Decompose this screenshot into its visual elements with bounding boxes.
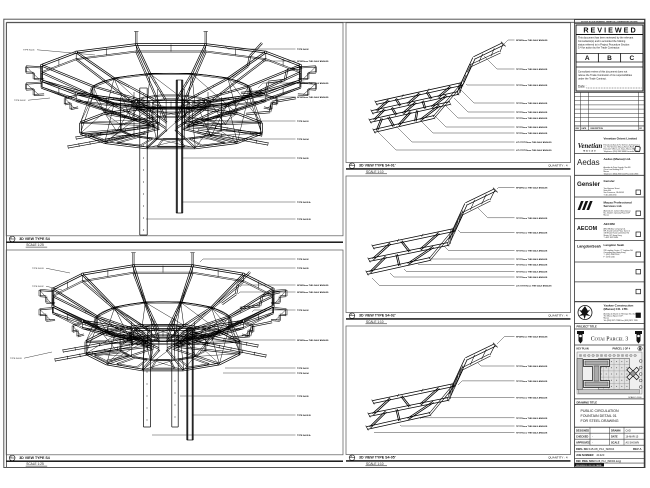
svg-text:SCALE 1:25: SCALE 1:25: [26, 243, 44, 247]
svg-text:FOR STEEL DRAWING: FOR STEEL DRAWING: [581, 419, 619, 423]
svg-text:TYPE S4-05 A: TYPE S4-05 A: [297, 201, 311, 204]
svg-text:MACAO: MACAO: [583, 150, 596, 153]
svg-text:75*75*6mm THK GALV ANGLES: 75*75*6mm THK GALV ANGLES: [516, 276, 548, 279]
svg-text:BY: BY: [640, 128, 643, 130]
svg-text:SP50F6mm THK GALV ANGLES: SP50F6mm THK GALV ANGLES: [297, 291, 329, 294]
svg-text:SP50F6mm THK GALV ANGLES: SP50F6mm THK GALV ANGLES: [516, 336, 548, 339]
svg-text:TYPE S4-04: TYPE S4-04: [297, 372, 309, 375]
svg-text:KEY PLAN: KEY PLAN: [577, 348, 589, 351]
svg-text:TYPE S4-04: TYPE S4-04: [297, 138, 309, 141]
svg-text:SP50F6mm THK GALV ANGLES: SP50F6mm THK GALV ANGLES: [297, 82, 329, 85]
svg-text:-: -: [592, 441, 593, 444]
svg-text:-: -: [592, 435, 593, 438]
svg-text:3D VIEW TYPE S4-02': 3D VIEW TYPE S4-02': [359, 314, 396, 318]
svg-text:Aedas: Aedas: [577, 158, 600, 167]
svg-text:Venetian Orient Limited: Venetian Orient Limited: [604, 137, 638, 141]
svg-text:AECOM: AECOM: [604, 222, 616, 226]
svg-text:TYPE S4-01: TYPE S4-01: [23, 50, 35, 52]
svg-text:REV A: REV A: [633, 447, 641, 451]
svg-text:SP50F6mm THK GALV ANGLES: SP50F6mm THK GALV ANGLES: [297, 60, 329, 63]
svg-text:75*75*6mm THK GALV ANGLES: 75*75*6mm THK GALV ANGLES: [516, 380, 548, 383]
svg-text:Venetian: Venetian: [578, 143, 603, 150]
svg-text:PROJECT TITLE: PROJECT TITLE: [577, 325, 597, 329]
svg-text:DRAWN: DRAWN: [611, 429, 621, 432]
svg-text:L75 75*75*6mm THK GALV ANGLES: L75 75*75*6mm THK GALV ANGLES: [516, 285, 552, 288]
svg-text:TYPE S4-05 A: TYPE S4-05 A: [297, 434, 311, 437]
svg-text:T: 415.433.3700: T: 415.433.3700: [604, 194, 617, 196]
svg-text:Gensler: Gensler: [604, 179, 616, 183]
svg-text:R E V I E W E D: R E V I E W E D: [583, 26, 635, 35]
svg-text:TYPE S4-03: TYPE S4-03: [10, 358, 22, 360]
svg-text:75*75*6mm THK GALV ANGLES: 75*75*6mm THK GALV ANGLES: [516, 132, 548, 135]
svg-text:SCALE: SCALE: [611, 441, 620, 444]
svg-text:Telephone: (853) 2833 1113 Fa: Telephone: (853) 2833 1113 Facsimile 283…: [604, 173, 639, 175]
svg-text:TYPE S4-02: TYPE S4-02: [297, 48, 309, 51]
svg-text:TYPE S4-05 B: TYPE S4-05 B: [297, 218, 311, 221]
svg-text:21320: 21320: [597, 453, 605, 457]
svg-text:75*75*6mm THK GALV ANGLES: 75*75*6mm THK GALV ANGLES: [516, 117, 548, 120]
svg-text:SP50F6mm THK GALV ANGLES: SP50F6mm THK GALV ANGLES: [297, 339, 329, 342]
svg-text:TYPE S4-02: TYPE S4-02: [297, 309, 309, 312]
svg-text:3D VIEW TYPE S4: 3D VIEW TYPE S4: [19, 237, 50, 241]
svg-text:COTAI PARCEL 3: COTAI PARCEL 3: [591, 337, 629, 343]
svg-text:AECOM: AECOM: [577, 226, 598, 232]
svg-text:75*75*6mm THK GALV ANGLES: 75*75*6mm THK GALV ANGLES: [516, 264, 548, 267]
svg-text:TYPE S4-03: TYPE S4-03: [297, 120, 309, 123]
svg-text:75*75*6mm THK GALV ANGLES: 75*75*6mm THK GALV ANGLES: [516, 271, 548, 274]
svg-text:TYPE S4-02: TYPE S4-02: [32, 286, 44, 288]
svg-text:SCALE 1:1000: SCALE 1:1000: [628, 396, 642, 399]
svg-text:SP50F6mm THK GALV ANGLES: SP50F6mm THK GALV ANGLES: [297, 284, 329, 287]
svg-text:TYPE S4-05 B: TYPE S4-05 B: [297, 414, 311, 417]
svg-text:Tel: (853) 2871 7288 Fax: (85: Tel: (853) 2871 7288 Fax: (853) 2871 728…: [604, 320, 638, 322]
svg-text:REV: REV: [576, 128, 580, 130]
svg-text:Gensler: Gensler: [577, 181, 601, 188]
svg-text:DATE: DATE: [582, 127, 588, 130]
svg-text:APPROVED: APPROVED: [576, 441, 590, 444]
svg-text:Services Ltd.: Services Ltd.: [604, 204, 623, 208]
svg-text:SP50F6mm THK GALV ANGLES: SP50F6mm THK GALV ANGLES: [297, 96, 329, 99]
svg-text:TYPE S4-03: TYPE S4-03: [32, 268, 44, 270]
svg-text:SCALE 1:10: SCALE 1:10: [366, 170, 384, 174]
svg-text:TYPE S4-05: TYPE S4-05: [297, 267, 309, 270]
svg-text:Macau: Macau: [604, 215, 609, 217]
svg-text:FOUNTAIN DETAIL 01: FOUNTAIN DETAIL 01: [581, 414, 617, 418]
svg-text:A: A: [585, 55, 590, 62]
svg-text:75*75*6mm THK GALV ANGLES: 75*75*6mm THK GALV ANGLES: [516, 126, 548, 129]
svg-text:F : 2576 0416: F : 2576 0416: [604, 256, 615, 258]
svg-text:(Macau) CO. LTD.: (Macau) CO. LTD.: [604, 307, 629, 311]
svg-text:5.4 for action by the Trade Co: 5.4 for action by the Trade Contractor.: [578, 47, 620, 50]
svg-text:75*75*6mm THK GALV ANGLES: 75*75*6mm THK GALV ANGLES: [516, 417, 548, 420]
svg-text:3D VIEW TYPE S4-01': 3D VIEW TYPE S4-01': [359, 164, 396, 168]
svg-text:75*75*6mm THK GALV ANGLES: 75*75*6mm THK GALV ANGLES: [516, 217, 548, 220]
svg-text:TYPE S4-03: TYPE S4-03: [297, 367, 309, 370]
svg-text:75*75*6mm THK GALV ANGLES: 75*75*6mm THK GALV ANGLES: [516, 250, 548, 253]
svg-text:TYPE S4-02: TYPE S4-02: [14, 100, 26, 102]
svg-text:REF. DWG. NO.: REF. DWG. NO.: [576, 460, 594, 463]
svg-text:T +852 3922 9000: T +852 3922 9000: [604, 237, 619, 239]
svg-text:DWG. NO.: DWG. NO.: [576, 447, 589, 451]
svg-text:TYPE S4-05: TYPE S4-05: [297, 157, 309, 160]
svg-text:LangdonSeah: LangdonSeah: [577, 245, 601, 249]
svg-text:TYPE S4-02: TYPE S4-02: [297, 258, 309, 261]
svg-text:Langdon Seah: Langdon Seah: [604, 243, 625, 247]
svg-text:PARCEL 1 OF 4: PARCEL 1 OF 4: [613, 348, 631, 351]
svg-text:75*75*6mm THK GALV ANGLES: 75*75*6mm THK GALV ANGLES: [516, 432, 548, 435]
svg-text:TYPE S4-05: TYPE S4-05: [297, 395, 309, 398]
svg-text:CHECKED: CHECKED: [576, 435, 589, 438]
svg-text:DESIGNED: DESIGNED: [576, 429, 589, 432]
svg-text:16-MAR-15: 16-MAR-15: [626, 435, 639, 438]
svg-text:QUANTITY : 4: QUANTITY : 4: [548, 164, 568, 168]
svg-text:S15-08_P12_(SR004.dwg): S15-08_P12_(SR004.dwg): [593, 460, 622, 463]
svg-text:SCALE 1:25: SCALE 1:25: [26, 462, 44, 466]
svg-text:75*75*6mm THK GALV ANGLES: 75*75*6mm THK GALV ANGLES: [516, 258, 548, 261]
svg-text:3D VIEW TYPE S4-05': 3D VIEW TYPE S4-05': [359, 456, 396, 460]
svg-text:DESCRIPTION: DESCRIPTION: [591, 128, 604, 130]
svg-text:L75 75*75*6mm THK GALV ANGLES: L75 75*75*6mm THK GALV ANGLES: [516, 149, 552, 152]
svg-text:3D VIEW TYPE S4: 3D VIEW TYPE S4: [19, 456, 50, 460]
svg-text:75*75*6mm THK GALV ANGLES: 75*75*6mm THK GALV ANGLES: [516, 111, 548, 114]
svg-text:AS SHOWN: AS SHOWN: [626, 441, 640, 444]
svg-text:SP50F6mm THK GALV ANGLES: SP50F6mm THK GALV ANGLES: [516, 39, 548, 42]
svg-text:SCALE 1:10: SCALE 1:10: [366, 462, 384, 466]
svg-text:75*75*6mm THK GALV ANGLES: 75*75*6mm THK GALV ANGLES: [516, 397, 548, 400]
svg-text:Aedas (Macau) Ltd.: Aedas (Macau) Ltd.: [604, 157, 632, 161]
svg-text:Telephone: (853) 2882 8888 Fa: Telephone: (853) 2882 8888 Facsimile 288…: [604, 151, 639, 153]
svg-text:DATE: DATE: [611, 435, 618, 438]
svg-text:CAD: CAD: [626, 429, 631, 432]
svg-text:75*75*6mm THK GALV ANGLES: 75*75*6mm THK GALV ANGLES: [516, 102, 548, 105]
svg-text:REFERENCE ON FILE NAME: REFERENCE ON FILE NAME: [576, 464, 602, 467]
svg-text:DRAWING TITLE: DRAWING TITLE: [577, 400, 598, 404]
svg-text:SP50F6mm THK GALV ANGLES: SP50F6mm THK GALV ANGLES: [516, 186, 548, 189]
svg-text:75*75*6mm THK GALV ANGLES: 75*75*6mm THK GALV ANGLES: [516, 365, 548, 368]
svg-text:S15-08_P12_SR004: S15-08_P12_SR004: [589, 447, 615, 451]
svg-text:L75 75*75*6mm THK GALV ANGLES: L75 75*75*6mm THK GALV ANGLES: [516, 141, 552, 144]
svg-text:PUBLIC CIRCULATION: PUBLIC CIRCULATION: [581, 409, 619, 413]
svg-text:Date :: Date :: [578, 85, 587, 89]
svg-text:75*75*6mm THK GALV ANGLES: 75*75*6mm THK GALV ANGLES: [516, 68, 548, 71]
svg-text:DO NOT SCALE DRAWING. VERIFY A: DO NOT SCALE DRAWING. VERIFY ALL DIMENSI…: [581, 20, 638, 23]
svg-text:75*75*6mm THK GALV ANGLES: 75*75*6mm THK GALV ANGLES: [516, 84, 548, 87]
svg-text:SCALE 1:10: SCALE 1:10: [366, 320, 384, 324]
svg-text:C: C: [629, 55, 634, 62]
svg-text:75*75*6mm THK GALV ANGLES: 75*75*6mm THK GALV ANGLES: [516, 232, 548, 235]
svg-text:under the Trade Contract.: under the Trade Contract.: [578, 77, 607, 80]
svg-text:75*75*6mm THK GALV ANGLES: 75*75*6mm THK GALV ANGLES: [516, 425, 548, 428]
svg-text:JOB NUMBER: JOB NUMBER: [576, 453, 594, 457]
svg-text:QUANTITY : 4: QUANTITY : 4: [548, 456, 568, 460]
svg-text:B: B: [607, 55, 612, 62]
svg-text:QUANTITY : 4: QUANTITY : 4: [548, 314, 568, 318]
